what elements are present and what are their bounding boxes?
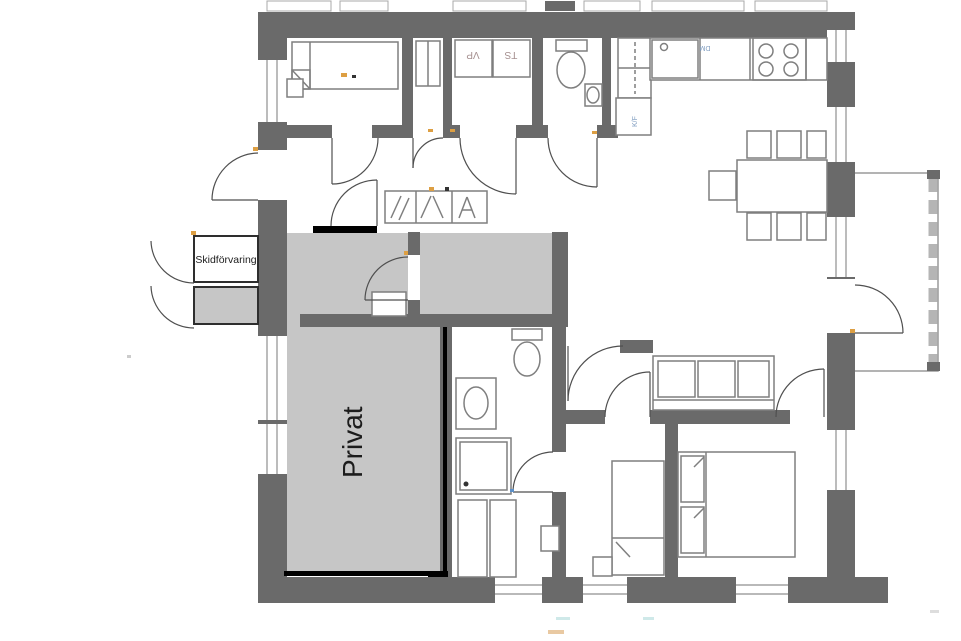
dishwasher-label: DM	[699, 44, 710, 51]
cabinet	[541, 526, 559, 551]
double-bed-icon	[678, 452, 795, 557]
kitchen: K/F DM	[616, 38, 827, 135]
chair	[747, 213, 771, 240]
window	[827, 430, 855, 490]
bedroom-2	[593, 461, 664, 576]
private-label: Privat	[337, 406, 368, 478]
drying-cabinet-label: TS	[504, 49, 517, 60]
bedroom1-door	[332, 138, 378, 184]
wc-door	[548, 131, 597, 187]
entry-door	[212, 147, 258, 200]
chair	[807, 213, 826, 240]
closet-door	[490, 500, 516, 577]
terrace	[850, 170, 940, 371]
bedroom-1	[287, 42, 398, 97]
bathroom-door	[510, 452, 553, 492]
heat-pump-label: VP	[466, 49, 480, 60]
window	[827, 107, 855, 162]
chair	[747, 131, 771, 158]
ski-door-arc	[151, 241, 194, 283]
private-room-door	[331, 180, 377, 226]
bed-icon	[292, 42, 398, 89]
bedroom3-door	[776, 369, 824, 417]
corridor-niche	[372, 292, 406, 316]
ski-storage-label: Skidförvaring	[195, 254, 256, 266]
nightstand-icon	[593, 557, 612, 576]
wc-top	[556, 40, 602, 106]
chair	[807, 131, 826, 158]
nightstand-icon	[287, 79, 303, 97]
dining-table	[737, 160, 827, 212]
sink-icon	[456, 378, 496, 429]
corner-sink-icon	[585, 84, 602, 106]
toilet-icon	[512, 329, 542, 376]
toilet-icon	[556, 40, 587, 88]
ski-door-arc	[151, 286, 194, 328]
closet-door	[458, 500, 487, 577]
chair	[709, 171, 736, 200]
window	[583, 577, 627, 603]
ski-storage	[151, 231, 258, 328]
closet	[416, 41, 440, 86]
floor-plan: VP TS K/F DM	[0, 0, 961, 641]
floor-plan-drawing: VP TS K/F DM	[0, 0, 961, 641]
window	[258, 424, 287, 474]
window	[827, 217, 855, 277]
hall-door	[568, 346, 623, 401]
chair	[777, 131, 801, 158]
window	[736, 577, 788, 603]
sofa-icon	[653, 356, 774, 410]
chair	[777, 213, 801, 240]
laundry-room: VP TS	[455, 40, 530, 77]
kitchen-counter	[650, 38, 827, 80]
terrace-door-arc	[855, 285, 903, 333]
window	[258, 60, 287, 122]
laundry-door	[450, 129, 516, 194]
hall-wardrobe	[385, 187, 487, 223]
window	[258, 336, 287, 420]
bedroom-3	[678, 452, 795, 557]
dining-area	[709, 131, 827, 240]
fridge-freezer-label: K/F	[632, 116, 639, 127]
window	[495, 577, 542, 603]
bed-icon	[612, 461, 664, 575]
shower-icon	[456, 438, 511, 494]
window	[827, 30, 855, 62]
cutoff-strip	[267, 1, 827, 11]
